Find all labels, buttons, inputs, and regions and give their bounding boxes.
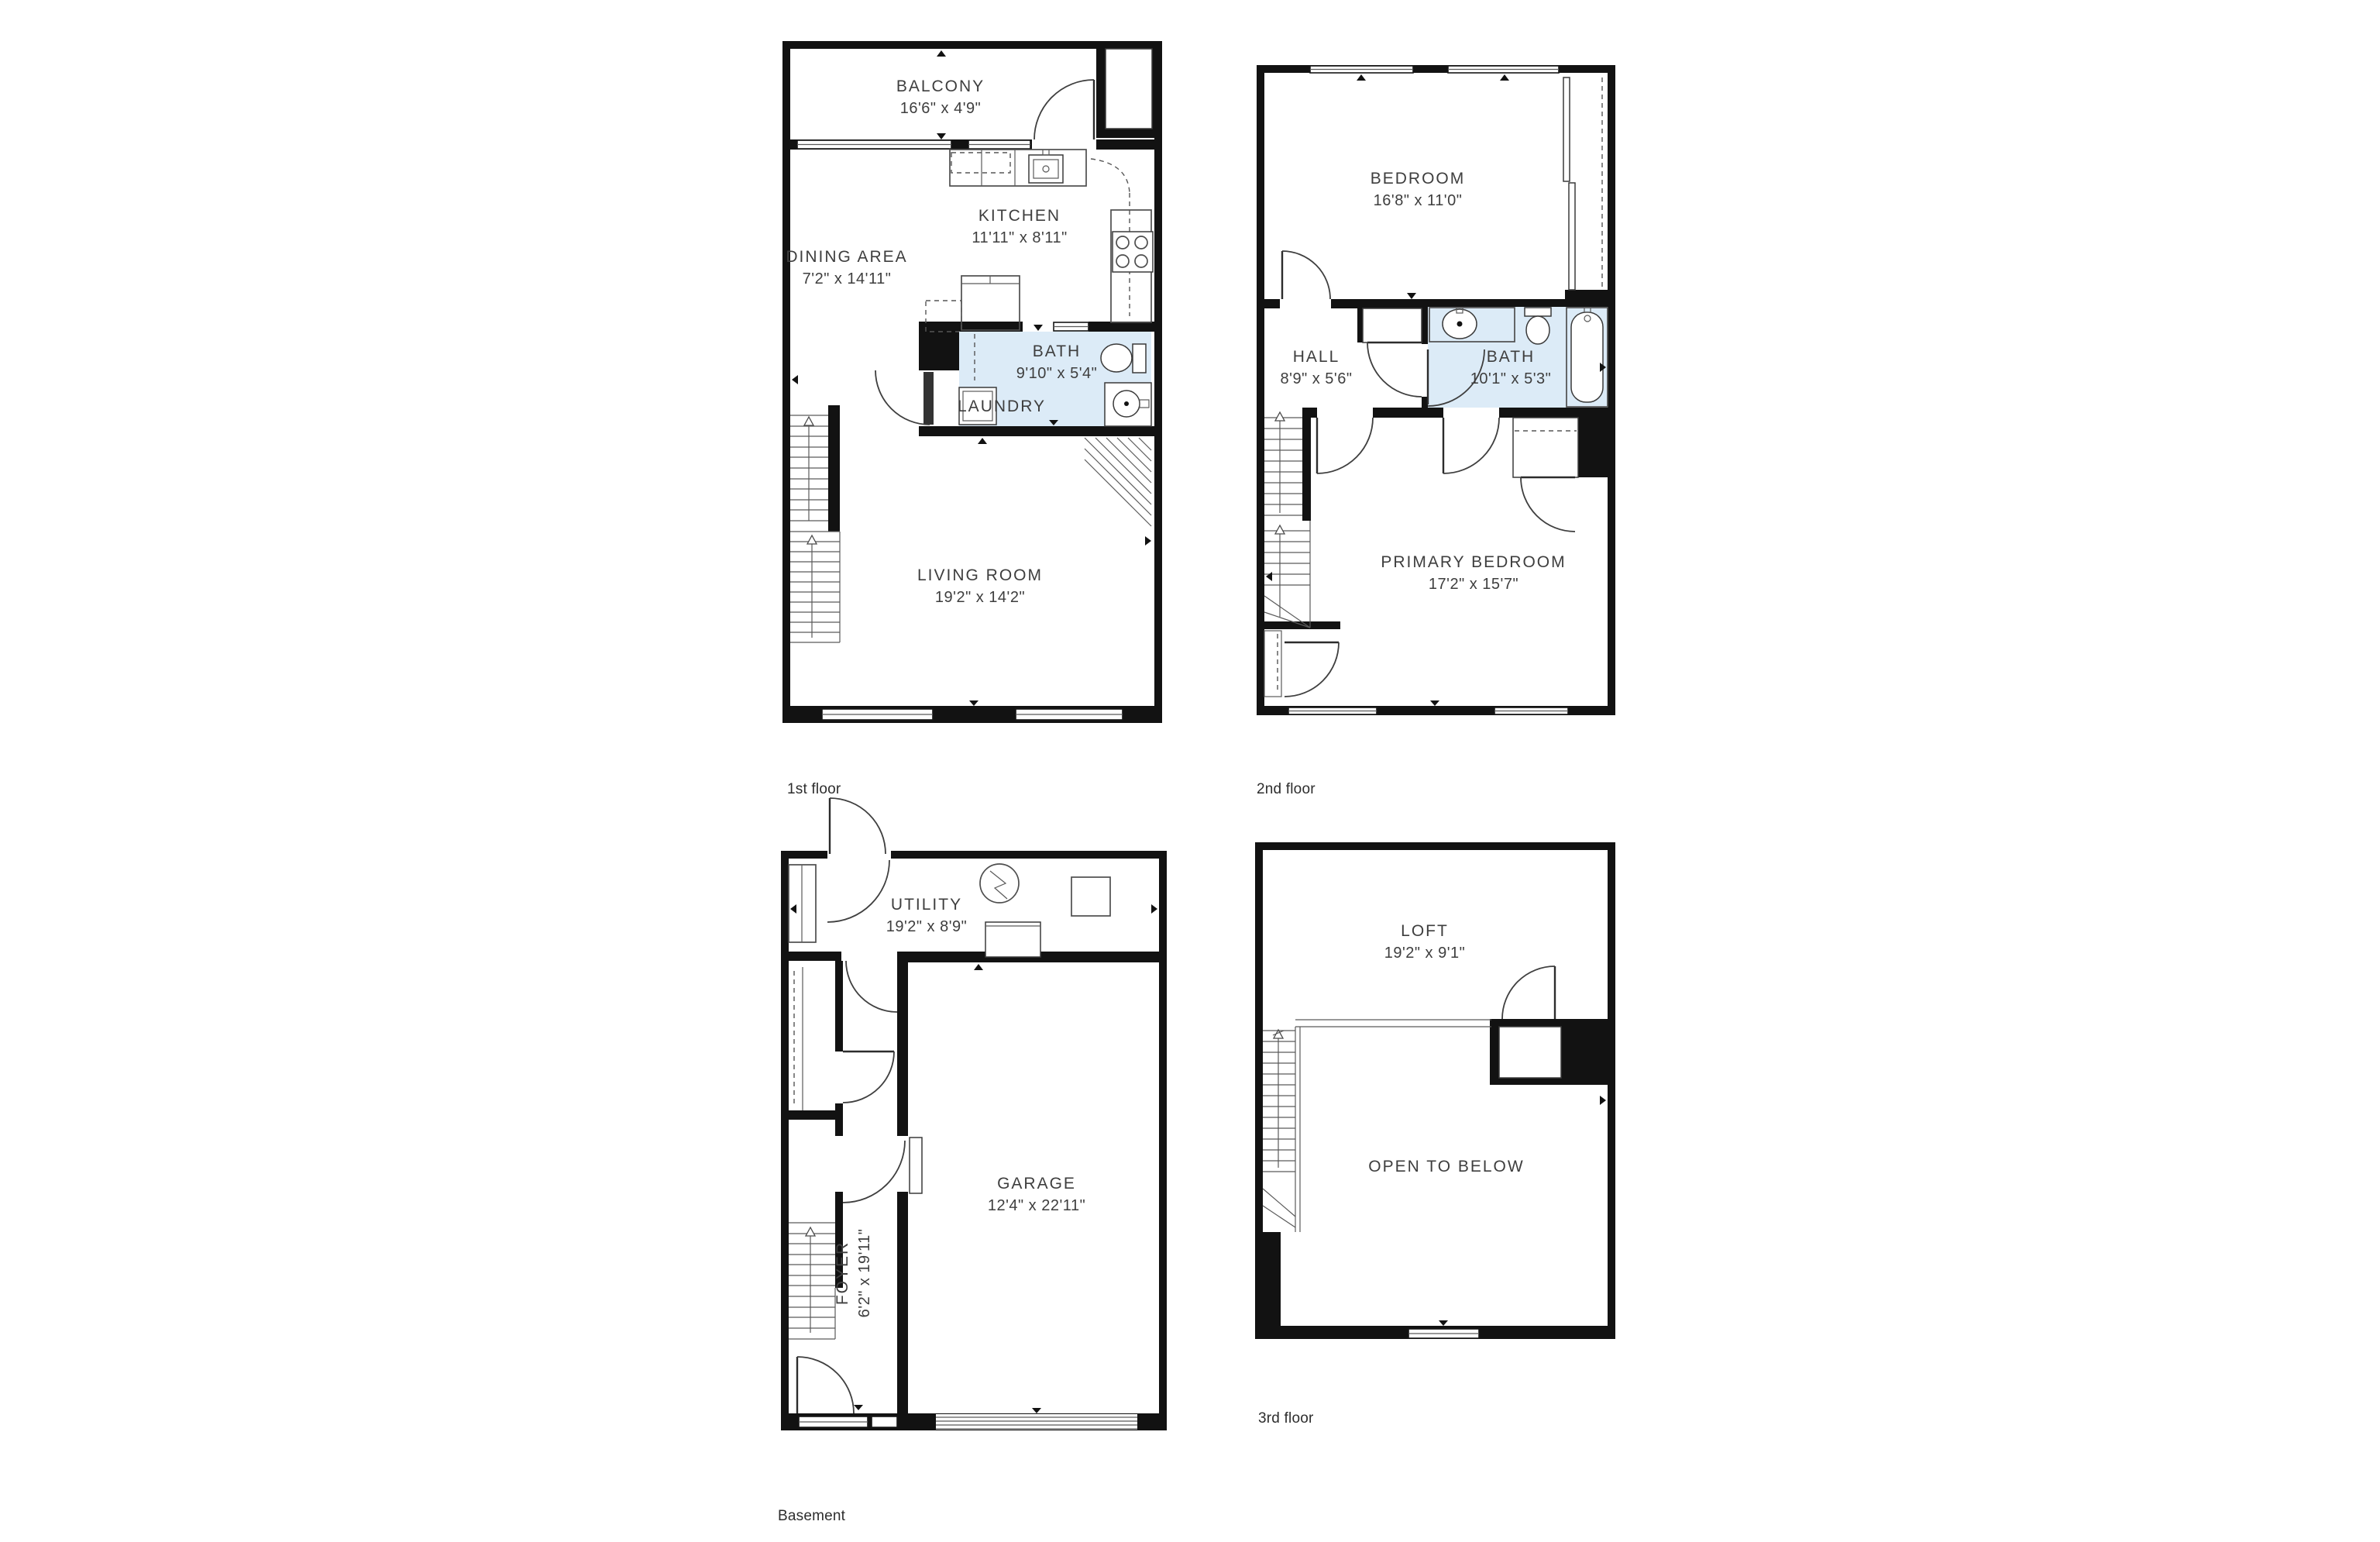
room-label-bath-1st: BATH 9'10" x 5'4" — [1016, 341, 1098, 384]
floor-plan-1st-floor-drawing — [782, 41, 1162, 723]
balcony-storage — [1106, 49, 1152, 129]
front-door — [797, 1357, 854, 1413]
room-dims: 8'9" x 5'6" — [1281, 368, 1353, 390]
room-name: BATH — [1470, 346, 1552, 368]
room-name: BATH — [1016, 341, 1098, 363]
direction-ticks — [790, 904, 1157, 1413]
bathtub-icon — [1567, 308, 1608, 407]
primary-entry-door — [1264, 631, 1339, 697]
toilet-icon — [1101, 344, 1146, 373]
room-name: BALCONY — [896, 76, 985, 98]
room-name: BEDROOM — [1371, 168, 1466, 190]
room-dims: 16'6" x 4'9" — [896, 98, 985, 119]
floor-label-2nd-floor: 2nd floor — [1257, 781, 1316, 798]
hall-to-primary-door — [1317, 418, 1373, 473]
hall-closet — [1363, 308, 1422, 397]
staircase — [1263, 1030, 1295, 1227]
room-dims: 19'2" x 9'1" — [1384, 942, 1466, 964]
room-dims: 6'2" x 19'11" — [854, 1229, 875, 1318]
room-label-hall: HALL 8'9" x 5'6" — [1281, 346, 1353, 390]
floor-plan-basement: UTILITY 19'2" x 8'9" GARAGE 12'4" x 22'1… — [781, 851, 1167, 1430]
room-dims: 10'1" x 5'3" — [1470, 368, 1552, 390]
primary-closet — [1513, 418, 1578, 532]
loft-half-wall — [1295, 1020, 1491, 1232]
room-name: LIVING ROOM — [917, 565, 1043, 587]
landing-door — [843, 1052, 894, 1103]
room-label-balcony: BALCONY 16'6" x 4'9" — [896, 76, 985, 119]
room-label-bath-2nd: BATH 10'1" x 5'3" — [1470, 346, 1552, 390]
floorplan-canvas: BALCONY 16'6" x 4'9" KITCHEN 11'11" x 8'… — [0, 0, 2380, 1542]
utility-entry-door — [827, 798, 889, 922]
room-label-garage: GARAGE 12'4" x 22'11" — [988, 1173, 1085, 1217]
floor-plan-2nd-floor: BEDROOM 16'8" x 11'0" HALL 8'9" x 5'6" B… — [1257, 65, 1615, 715]
room-label-kitchen: KITCHEN 11'11" x 8'11" — [972, 205, 1067, 249]
bedroom-door — [1282, 251, 1330, 299]
room-name: HALL — [1281, 346, 1353, 368]
room-label-primary-bedroom: PRIMARY BEDROOM 17'2" x 15'7" — [1381, 552, 1566, 595]
powder-sink-icon — [1105, 383, 1151, 426]
freezer-icon — [985, 922, 1040, 957]
room-label-laundry: LAUNDRY — [958, 396, 1046, 418]
room-name: DINING AREA — [786, 246, 907, 268]
toilet-icon — [1525, 308, 1551, 344]
floor-plan-basement-drawing — [781, 851, 1167, 1430]
floor-plan-3rd-floor: LOFT 19'2" x 9'1" OPEN TO BELOW — [1255, 842, 1615, 1339]
foyer-closet — [794, 967, 803, 1110]
appliance-icon — [1071, 877, 1110, 916]
windows — [799, 1416, 897, 1427]
bedroom-closet — [1563, 77, 1602, 290]
staircase-left — [790, 405, 840, 642]
room-label-living-room: LIVING ROOM 19'2" x 14'2" — [917, 565, 1043, 608]
bath-to-primary-door — [1443, 418, 1499, 473]
room-dims: 19'2" x 14'2" — [917, 587, 1043, 608]
room-dims: 16'8" x 11'0" — [1371, 190, 1466, 212]
floor-label-basement: Basement — [778, 1508, 845, 1525]
room-dims: 9'10" x 5'4" — [1016, 363, 1098, 384]
walls — [1255, 842, 1615, 1339]
walls — [781, 851, 1167, 1430]
room-label-open-to-below: OPEN TO BELOW — [1368, 1156, 1524, 1178]
room-name: LAUNDRY — [958, 396, 1046, 418]
floor-label-3rd-floor: 3rd floor — [1258, 1410, 1314, 1427]
kitchen-sink-icon — [1029, 150, 1063, 183]
floor-plan-3rd-floor-drawing — [1255, 842, 1615, 1339]
floor-plan-1st-floor: BALCONY 16'6" x 4'9" KITCHEN 11'11" x 8'… — [782, 41, 1162, 723]
room-label-foyer: FOYER 6'2" x 19'11" — [832, 1229, 875, 1318]
room-dims: 7'2" x 14'11" — [786, 268, 907, 290]
room-dims: 19'2" x 8'9" — [886, 916, 968, 938]
garage-door-icon — [936, 1414, 1137, 1430]
room-name: UTILITY — [886, 894, 968, 916]
room-name: PRIMARY BEDROOM — [1381, 552, 1566, 573]
floor-label-1st-floor: 1st floor — [787, 781, 841, 798]
stove-icon — [1113, 232, 1153, 272]
windows — [1408, 1329, 1479, 1338]
entry-door — [875, 370, 934, 425]
water-heater-icon — [980, 864, 1019, 903]
room-name: FOYER — [832, 1229, 854, 1318]
room-name: LOFT — [1384, 921, 1466, 942]
room-name: OPEN TO BELOW — [1368, 1156, 1524, 1178]
staircase-upper-diagonal — [1085, 438, 1151, 526]
room-dims: 12'4" x 22'11" — [988, 1195, 1085, 1217]
staircase — [789, 1223, 835, 1339]
direction-ticks — [1439, 1096, 1606, 1326]
garage-door-interior — [843, 1138, 922, 1203]
shelf-icon — [789, 865, 816, 942]
balcony-door — [1034, 80, 1094, 139]
floor-plan-2nd-floor-drawing — [1257, 65, 1615, 715]
room-dims: 11'11" x 8'11" — [972, 227, 1067, 249]
room-name: GARAGE — [988, 1173, 1085, 1195]
room-label-utility: UTILITY 19'2" x 8'9" — [886, 894, 968, 938]
utility-to-foyer-door — [846, 961, 897, 1012]
room-label-dining-area: DINING AREA 7'2" x 14'11" — [786, 246, 907, 290]
room-name: KITCHEN — [972, 205, 1067, 227]
staircase — [1264, 408, 1311, 628]
room-label-bedroom: BEDROOM 16'8" x 11'0" — [1371, 168, 1466, 212]
room-dims: 17'2" x 15'7" — [1381, 573, 1566, 595]
room-label-loft: LOFT 19'2" x 9'1" — [1384, 921, 1466, 964]
